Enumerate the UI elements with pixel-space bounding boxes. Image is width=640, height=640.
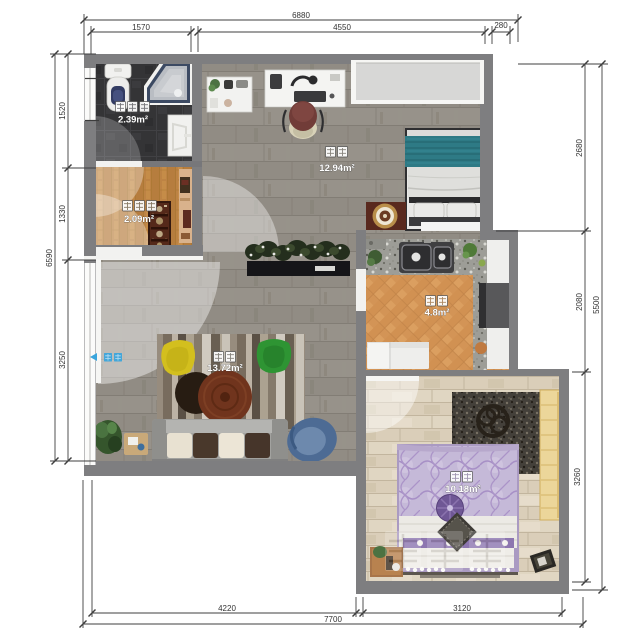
svg-text:1330: 1330 (58, 205, 67, 223)
svg-text:2.39m²: 2.39m² (118, 115, 148, 126)
svg-text:2680: 2680 (575, 139, 584, 157)
svg-text:5500: 5500 (592, 296, 601, 314)
svg-text:10.18m²: 10.18m² (445, 484, 480, 495)
svg-text:4550: 4550 (333, 23, 351, 32)
svg-text:4220: 4220 (218, 604, 236, 613)
svg-text:6880: 6880 (292, 11, 310, 20)
svg-text:1520: 1520 (58, 102, 67, 120)
svg-text:3250: 3250 (58, 351, 67, 369)
svg-text:6590: 6590 (45, 249, 54, 267)
svg-text:3260: 3260 (573, 468, 582, 486)
svg-text:13.72m²: 13.72m² (207, 363, 242, 374)
svg-text:7700: 7700 (324, 615, 342, 624)
svg-text:3120: 3120 (453, 604, 471, 613)
svg-text:12.94m²: 12.94m² (319, 163, 354, 174)
svg-text:1570: 1570 (132, 23, 150, 32)
svg-text:2080: 2080 (575, 293, 584, 311)
svg-text:280: 280 (494, 21, 508, 30)
svg-text:2.09m²: 2.09m² (124, 214, 154, 225)
svg-text:4.8m²: 4.8m² (425, 308, 450, 319)
